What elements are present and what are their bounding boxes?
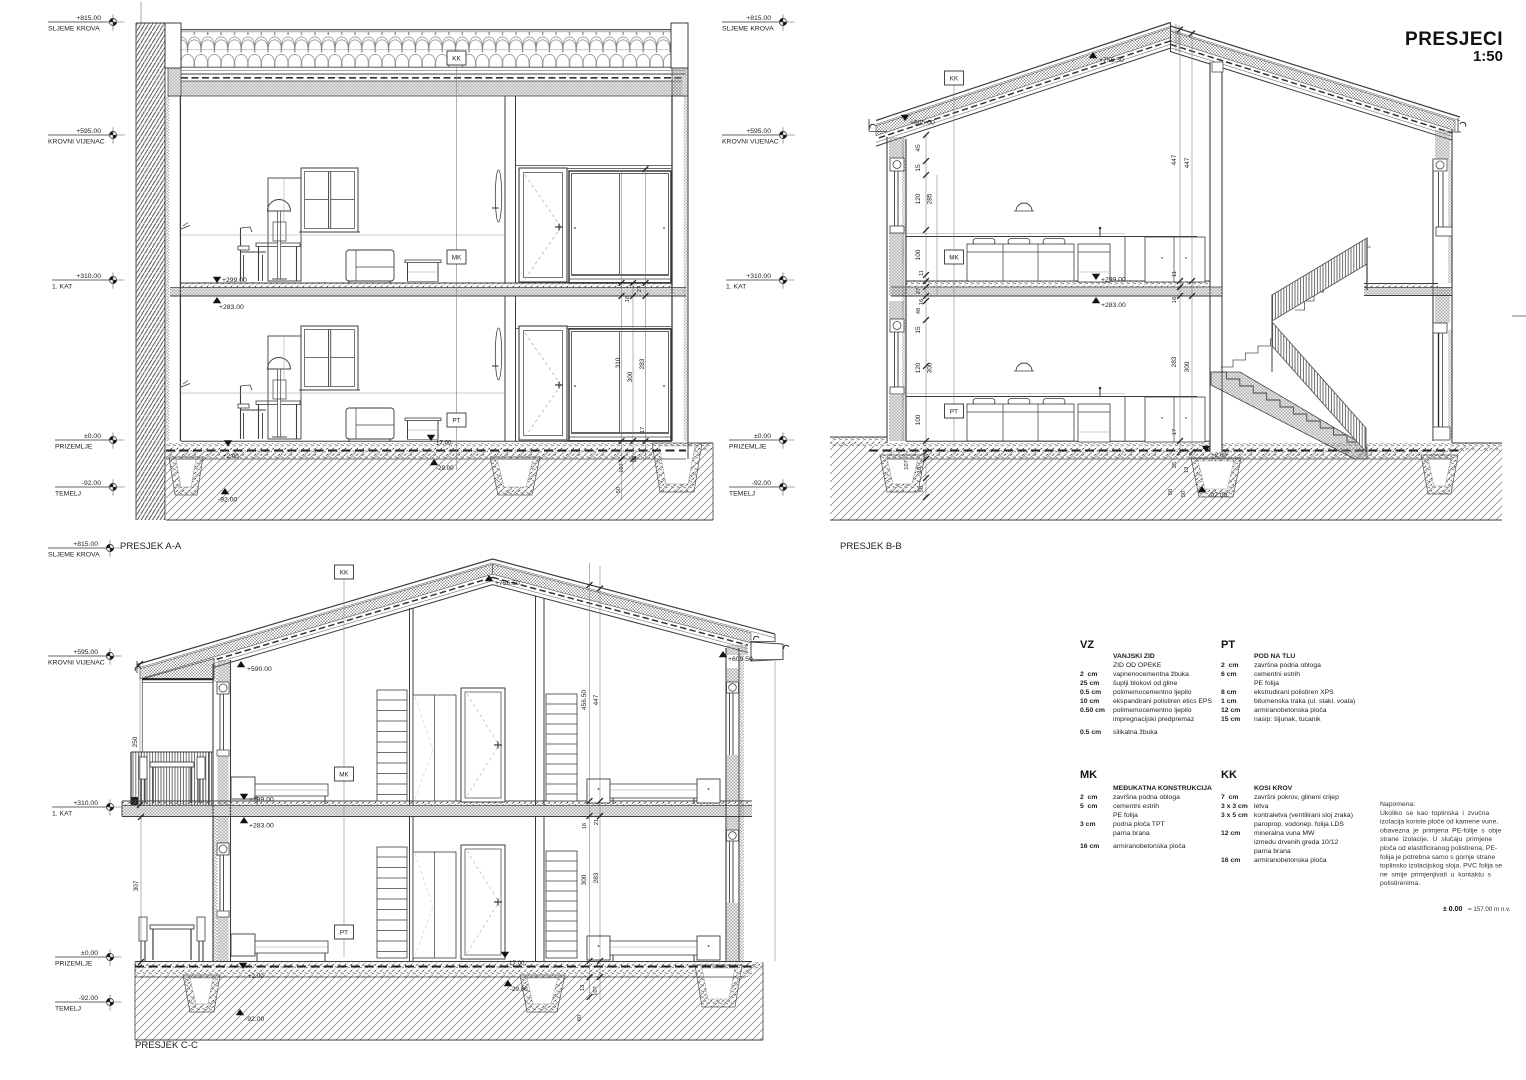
- svg-text:+605.00: +605.00: [910, 120, 935, 127]
- svg-text:27: 27: [637, 286, 643, 292]
- svg-text:TEMELJ: TEMELJ: [729, 491, 755, 498]
- svg-text:obavezna je primjena PE-fol: obavezna je primjena PE-folije s obje: [1380, 827, 1501, 834]
- svg-text:283: 283: [639, 358, 646, 369]
- svg-text:šuplji blokovi od gline: šuplji blokovi od gline: [1113, 680, 1177, 687]
- svg-text:25 cm: 25 cm: [1080, 680, 1099, 687]
- svg-text:-92.00: -92.00: [1208, 492, 1227, 499]
- svg-text:120: 120: [915, 193, 922, 204]
- svg-text:3 x 5 cm: 3 x 5 cm: [1221, 812, 1248, 819]
- svg-text:polistirenima.: polistirenima.: [1380, 880, 1420, 887]
- svg-text:+310.00: +310.00: [746, 273, 771, 280]
- svg-text:+815.00: +815.00: [73, 541, 98, 548]
- svg-text:2 cm: 2 cm: [1080, 794, 1097, 801]
- svg-text:ekstrudirani polistiren XPS: ekstrudirani polistiren XPS: [1254, 689, 1334, 696]
- svg-text:izmedu drvenih greda 10/12: izmedu drvenih greda 10/12: [1254, 839, 1338, 846]
- svg-text:+2.00: +2.00: [1211, 452, 1227, 459]
- svg-text:12 cm: 12 cm: [1221, 830, 1240, 837]
- svg-text:+299.00: +299.00: [1101, 277, 1126, 284]
- svg-text:MEĐUKATNA KONSTRUKCIJA: MEĐUKATNA KONSTRUKCIJA: [1113, 785, 1212, 792]
- svg-text:KK: KK: [340, 569, 349, 576]
- svg-text:toplinsko izolacijskog sloja.: toplinsko izolacijskog sloja. PVC folija…: [1380, 863, 1502, 870]
- svg-text:PRIZEMLJE: PRIZEMLJE: [55, 444, 93, 451]
- svg-text:7 cm: 7 cm: [1221, 794, 1238, 801]
- svg-text:8 cm: 8 cm: [1221, 689, 1237, 696]
- svg-text:1. KAT: 1. KAT: [52, 284, 72, 291]
- svg-text:3 x 3 cm: 3 x 3 cm: [1221, 803, 1248, 810]
- svg-text:1. KAT: 1. KAT: [726, 284, 746, 291]
- svg-text:+283.00: +283.00: [219, 304, 244, 311]
- svg-text:0.50 cm: 0.50 cm: [1080, 707, 1105, 714]
- svg-text:11: 11: [1172, 271, 1178, 277]
- svg-text:impregnacijski predpremaz: impregnacijski predpremaz: [1113, 716, 1195, 723]
- svg-text:307: 307: [133, 880, 140, 891]
- svg-text:5 cm: 5 cm: [1080, 803, 1097, 810]
- svg-text:0.5 cm: 0.5 cm: [1080, 689, 1101, 696]
- svg-text:PT: PT: [1221, 639, 1235, 651]
- svg-text:polimemocementno ljepilo: polimemocementno ljepilo: [1113, 689, 1192, 696]
- svg-text:+815.00: +815.00: [746, 15, 771, 22]
- svg-text:polimemocementno ljepilo: polimemocementno ljepilo: [1113, 707, 1192, 714]
- svg-text:-29.00: -29.00: [436, 465, 454, 472]
- svg-text:12 cm: 12 cm: [1221, 707, 1240, 714]
- svg-text:+310.00: +310.00: [76, 273, 101, 280]
- svg-text:ZID OD OPEKE: ZID OD OPEKE: [1113, 662, 1162, 669]
- svg-text:283: 283: [1171, 356, 1178, 367]
- svg-text:6 cm: 6 cm: [1221, 671, 1237, 678]
- svg-text:456.50: 456.50: [581, 690, 588, 710]
- svg-text:48: 48: [916, 308, 922, 314]
- svg-text:447: 447: [1184, 157, 1191, 168]
- svg-text:27: 27: [916, 288, 922, 294]
- svg-text:ploča od elastificiranog polis: ploča od elastificiranog polistirena, PE…: [1380, 845, 1497, 852]
- svg-text:+590.00: +590.00: [247, 666, 272, 673]
- svg-text:Ukoliko se kao toplinska i: Ukoliko se kao toplinska i zvučna: [1380, 810, 1489, 817]
- svg-text:podna ploča TPT: podna ploča TPT: [1113, 821, 1165, 828]
- svg-text:60: 60: [577, 1015, 583, 1021]
- svg-text:17.00: 17.00: [436, 440, 452, 447]
- svg-text:vapnenocementna žbuka: vapnenocementna žbuka: [1113, 671, 1189, 678]
- svg-text:310: 310: [615, 357, 622, 368]
- svg-text:300: 300: [627, 371, 634, 382]
- svg-text:300: 300: [927, 362, 934, 373]
- svg-text:45: 45: [915, 144, 922, 152]
- svg-text:PRIZEMLJE: PRIZEMLJE: [729, 444, 767, 451]
- svg-text:107: 107: [619, 463, 625, 473]
- svg-text:POD NA TLU: POD NA TLU: [1254, 653, 1295, 660]
- svg-text:KK: KK: [452, 55, 461, 62]
- svg-text:mineralna vuna MW: mineralna vuna MW: [1254, 830, 1315, 837]
- svg-text:+756.50: +756.50: [1099, 57, 1124, 64]
- svg-text:1. KAT: 1. KAT: [52, 811, 72, 818]
- svg-text:21: 21: [594, 819, 600, 825]
- svg-text:13: 13: [580, 985, 586, 991]
- svg-text:2 cm: 2 cm: [1080, 671, 1097, 678]
- svg-text:±0.00: ±0.00: [84, 433, 101, 440]
- svg-text:100: 100: [915, 249, 922, 260]
- svg-text:50: 50: [1168, 489, 1174, 495]
- svg-text:TEMELJ: TEMELJ: [55, 491, 81, 498]
- svg-text:VANJSKI ZID: VANJSKI ZID: [1113, 653, 1155, 660]
- svg-text:17: 17: [1172, 429, 1178, 435]
- svg-text:-92.00: -92.00: [79, 995, 98, 1002]
- svg-text:+595.00: +595.00: [73, 649, 98, 656]
- svg-text:17: 17: [640, 427, 646, 433]
- svg-text:SLJEME KROVA: SLJEME KROVA: [48, 552, 100, 559]
- svg-text:10 cm: 10 cm: [1080, 698, 1099, 705]
- svg-text:300: 300: [1184, 361, 1191, 372]
- svg-text:VZ: VZ: [1080, 639, 1094, 651]
- svg-text:cementni estrih: cementni estrih: [1254, 671, 1300, 678]
- svg-text:300: 300: [581, 874, 588, 885]
- svg-text:50: 50: [616, 487, 622, 493]
- svg-text:folija je potrebna samo s gorn: folija je potrebna samo s gornje strane: [1380, 854, 1495, 861]
- svg-text:bitumenska traka (ul. stakl. v: bitumenska traka (ul. stakl. voala): [1254, 698, 1355, 705]
- svg-text:armiranobetonska ploča: armiranobetonska ploča: [1254, 707, 1327, 714]
- svg-text:MK: MK: [339, 771, 349, 778]
- svg-text:+283.00: +283.00: [249, 823, 274, 830]
- svg-text:armiranobetonska ploča: armiranobetonska ploča: [1254, 857, 1327, 864]
- svg-text:13: 13: [1184, 467, 1190, 473]
- svg-text:250: 250: [132, 736, 139, 747]
- svg-text:paroprop. vodonep. folija LDS: paroprop. vodonep. folija LDS: [1254, 821, 1344, 828]
- svg-text:-92.00: -92.00: [218, 497, 237, 504]
- svg-text:11: 11: [919, 270, 925, 276]
- svg-text:završni pokrov, glineni crijep: završni pokrov, glineni crijep: [1254, 794, 1339, 801]
- svg-text:1:50: 1:50: [1473, 48, 1503, 65]
- svg-text:-92.00: -92.00: [245, 1016, 264, 1023]
- svg-text:92: 92: [632, 456, 638, 462]
- svg-text:447: 447: [1171, 154, 1178, 165]
- svg-text:cementni estrih: cementni estrih: [1113, 803, 1159, 810]
- svg-text:parna brana: parna brana: [1254, 848, 1291, 855]
- svg-text:PT: PT: [340, 929, 348, 936]
- svg-text:MK: MK: [1080, 769, 1097, 781]
- svg-text:+595.00: +595.00: [76, 128, 101, 135]
- svg-text:PRESJEK A-A: PRESJEK A-A: [120, 541, 182, 552]
- svg-text:parna brana: parna brana: [1113, 830, 1150, 837]
- svg-text:447: 447: [593, 694, 600, 705]
- svg-text:120: 120: [915, 362, 922, 373]
- svg-text:letva: letva: [1254, 803, 1269, 810]
- svg-text:PRIZEMLJE: PRIZEMLJE: [55, 961, 93, 968]
- svg-text:PE folija: PE folija: [1113, 812, 1138, 819]
- svg-text:0.5 cm: 0.5 cm: [1080, 729, 1101, 736]
- svg-text:kontraletva (ventilirani sloj: kontraletva (ventilirani sloj zraka): [1254, 812, 1353, 819]
- svg-text:15: 15: [915, 164, 922, 172]
- svg-text:MK: MK: [452, 254, 462, 261]
- svg-text:Napomena:: Napomena:: [1380, 801, 1415, 808]
- svg-text:PRESJEK C-C: PRESJEK C-C: [135, 1040, 198, 1051]
- svg-text:TEMELJ: TEMELJ: [55, 1006, 81, 1013]
- svg-text:107: 107: [904, 460, 910, 470]
- svg-text:SLJEME KROVA: SLJEME KROVA: [48, 26, 100, 33]
- svg-text:±0.00: ±0.00: [754, 433, 771, 440]
- svg-text:KROVNI VIJENAC: KROVNI VIJENAC: [48, 139, 105, 146]
- svg-text:+2.00: +2.00: [248, 973, 264, 980]
- svg-text:KROVNI VIJENAC: KROVNI VIJENAC: [48, 660, 105, 667]
- svg-text:= 157.00 m n.v.: = 157.00 m n.v.: [1468, 906, 1511, 913]
- svg-text:+756.50: +756.50: [495, 580, 520, 587]
- svg-text:KK: KK: [1221, 769, 1237, 781]
- svg-text:+299.00: +299.00: [249, 797, 274, 804]
- svg-text:107: 107: [593, 986, 599, 996]
- svg-text:50: 50: [1181, 491, 1187, 497]
- svg-text:16 cm: 16 cm: [1080, 843, 1099, 850]
- svg-text:±0.00: ±0.00: [81, 950, 98, 957]
- svg-text:-92.00: -92.00: [82, 480, 101, 487]
- svg-text:izolacija koriste ploče od kam: izolacija koriste ploče od kamene vune,: [1380, 819, 1498, 826]
- svg-text:armiranobetonska ploča: armiranobetonska ploča: [1113, 843, 1186, 850]
- svg-text:+595.00: +595.00: [746, 128, 771, 135]
- svg-text:17.00: 17.00: [509, 960, 525, 967]
- svg-text:13: 13: [917, 467, 923, 473]
- svg-text:KK: KK: [950, 75, 959, 82]
- svg-text:+283.00: +283.00: [1101, 302, 1126, 309]
- svg-text:1 cm: 1 cm: [1221, 698, 1237, 705]
- svg-text:završna podna obloga: završna podna obloga: [1113, 794, 1180, 801]
- svg-text:+815.00: +815.00: [76, 15, 101, 22]
- svg-text:16: 16: [582, 823, 588, 829]
- svg-text:SLJEME KROVA: SLJEME KROVA: [722, 26, 774, 33]
- svg-text:100: 100: [915, 414, 922, 425]
- svg-text:3 cm: 3 cm: [1080, 821, 1096, 828]
- svg-text:25: 25: [1172, 462, 1178, 468]
- svg-text:KOSI KROV: KOSI KROV: [1254, 785, 1293, 792]
- svg-text:285: 285: [927, 193, 934, 204]
- svg-text:+299.00: +299.00: [222, 277, 247, 284]
- svg-text:± 0.00: ± 0.00: [1443, 906, 1463, 913]
- svg-text:MK: MK: [949, 254, 959, 261]
- svg-text:PT: PT: [452, 417, 460, 424]
- svg-text:16 cm: 16 cm: [1221, 857, 1240, 864]
- svg-text:PE folija: PE folija: [1254, 680, 1279, 687]
- svg-text:15 cm: 15 cm: [1221, 716, 1240, 723]
- svg-text:283: 283: [593, 872, 600, 883]
- svg-text:-29.00: -29.00: [510, 986, 528, 993]
- svg-text:silikatna žbuka: silikatna žbuka: [1113, 729, 1158, 736]
- svg-text:PRESJEK B-B: PRESJEK B-B: [840, 541, 902, 552]
- svg-text:PT: PT: [950, 408, 958, 415]
- svg-text:ekspandirani polistiren etics: ekspandirani polistiren etics EPS: [1113, 698, 1212, 705]
- svg-text:+2.00: +2.00: [223, 453, 239, 460]
- svg-text:2 cm: 2 cm: [1221, 662, 1238, 669]
- svg-text:16: 16: [625, 296, 631, 302]
- svg-text:strane izolacije. U slučaju: strane izolacije. U slučaju primjene: [1380, 836, 1492, 843]
- svg-text:ne smije primjenjivati u k: ne smije primjenjivati u kontaktu s: [1380, 871, 1492, 878]
- svg-text:16: 16: [919, 299, 925, 305]
- svg-text:KROVNI VIJENAC: KROVNI VIJENAC: [722, 139, 779, 146]
- svg-text:nasip: šljunak, tucanik: nasip: šljunak, tucanik: [1254, 716, 1321, 723]
- svg-text:50: 50: [919, 486, 925, 492]
- svg-text:PRESJECI: PRESJECI: [1405, 29, 1503, 50]
- svg-text:+310.00: +310.00: [73, 800, 98, 807]
- svg-text:završna podna obloga: završna podna obloga: [1254, 662, 1321, 669]
- svg-text:-92.00: -92.00: [752, 480, 771, 487]
- svg-text:15: 15: [915, 326, 922, 334]
- svg-text:+609.50: +609.50: [728, 656, 753, 663]
- svg-text:16: 16: [1172, 297, 1178, 303]
